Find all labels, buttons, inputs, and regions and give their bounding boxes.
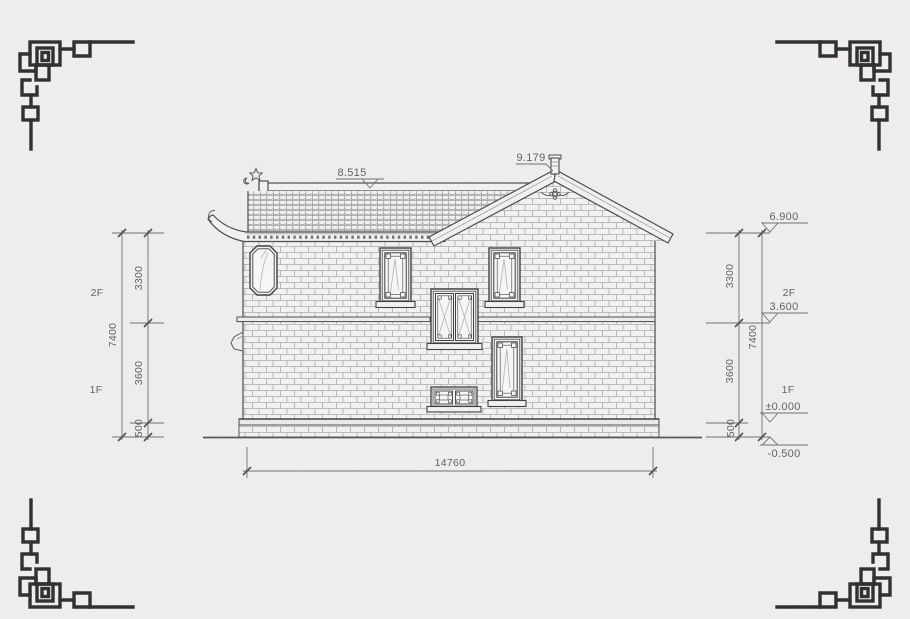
elevation-drawing: 7400 3300 3600 500 2F 1F 3300 3600 500 7… <box>0 0 910 619</box>
paper-grain <box>0 0 910 619</box>
drawing-sheet: 7400 3300 3600 500 2F 1F 3300 3600 500 7… <box>0 0 910 619</box>
